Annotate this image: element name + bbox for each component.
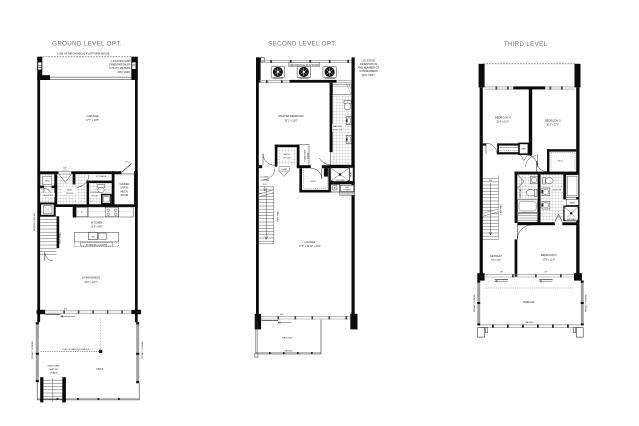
svg-text:MUD: MUD [67, 190, 72, 192]
svg-text:HALF WALL: HALF WALL [499, 203, 502, 215]
svg-text:MAY VARY: MAY VARY [118, 70, 131, 74]
svg-text:ORIENTATION OF: ORIENTATION OF [109, 63, 131, 67]
svg-text:ENSUITE: ENSUITE [552, 189, 561, 191]
svg-text:ORIENTATION: ORIENTATION [360, 62, 377, 66]
svg-text:PRIVACY SCREEN: PRIVACY SCREEN [473, 294, 476, 312]
svg-text:SLOPED CEILING: SLOPED CEILING [34, 213, 36, 232]
svg-text:PRIVACY SCREEN: PRIVACY SCREEN [584, 294, 587, 312]
svg-text:RETREAT: RETREAT [490, 254, 502, 258]
svg-text:AND NUMBER OF: AND NUMBER OF [358, 66, 380, 70]
svg-text:RAILING: RAILING [284, 350, 292, 353]
svg-text:W/D: W/D [45, 181, 50, 183]
svg-text:10'2" x 11'6": 10'2" x 11'6" [546, 124, 559, 127]
svg-text:BEDROOM 2: BEDROOM 2 [541, 253, 557, 257]
svg-text:CEILING: CEILING [260, 180, 269, 182]
svg-text:MASTER BEDROOM: MASTER BEDROOM [279, 114, 304, 118]
svg-text:UTILITY METERS: UTILITY METERS [109, 66, 130, 70]
svg-text:CONDENSERS: CONDENSERS [359, 69, 378, 73]
svg-text:PAN.: PAN. [521, 148, 526, 151]
svg-text:MASTER: MASTER [333, 125, 343, 128]
svg-text:SECOND LEVEL OPT.: SECOND LEVEL OPT. [268, 41, 337, 48]
svg-text:TERRACE: TERRACE [523, 301, 535, 304]
svg-text:MAY VARY: MAY VARY [362, 73, 375, 77]
svg-text:DECK: DECK [97, 368, 104, 371]
svg-text:13'4" x 8'5": 13'4" x 8'5" [91, 226, 103, 229]
svg-text:SUNKEN: SUNKEN [119, 183, 129, 186]
svg-text:LOCATION,: LOCATION, [362, 58, 376, 62]
svg-text:STORAGE: STORAGE [96, 175, 107, 178]
svg-text:17'8" x 11'6": 17'8" x 11'6" [542, 258, 555, 261]
svg-text:KITCHEN: KITCHEN [91, 221, 103, 225]
svg-text:GRADE: GRADE [50, 371, 58, 374]
svg-text:BALCONY: BALCONY [282, 336, 293, 339]
svg-text:SHOWER: SHOWER [567, 219, 577, 221]
svg-text:LINE OF BALCONY ABOVE: LINE OF BALCONY ABOVE [62, 348, 90, 351]
svg-text:s: s [102, 236, 103, 238]
svg-text:CURB: CURB [281, 169, 287, 171]
svg-text:LAUNDRY: LAUNDRY [43, 194, 54, 197]
svg-text:SLOPED: SLOPED [260, 177, 269, 179]
svg-text:POWDER: POWDER [90, 192, 100, 194]
svg-text:STEPS MAY: STEPS MAY [47, 364, 60, 367]
svg-text:ROOM: ROOM [121, 194, 128, 197]
svg-text:SEAT: SEAT [570, 202, 576, 205]
svg-text:PRIVACY SCREEN: PRIVACY SCREEN [141, 341, 144, 359]
svg-text:HALF WALL: HALF WALL [59, 231, 62, 244]
svg-text:17'7" x 20'5": 17'7" x 20'5" [86, 119, 99, 122]
svg-text:W.I.C.: W.I.C. [311, 181, 317, 183]
svg-text:17'2" x 26'10" + 20'1": 17'2" x 26'10" + 20'1" [299, 245, 322, 248]
svg-text:PRIVACY SCREEN: PRIVACY SCREEN [31, 341, 34, 359]
svg-text:FURNITURE: FURNITURE [305, 149, 307, 161]
svg-text:EXTENDED COUNTER: EXTENDED COUNTER [86, 244, 108, 246]
svg-text:MECH.: MECH. [120, 190, 128, 193]
svg-text:SEAT: SEAT [350, 171, 353, 177]
svg-text:DN: DN [489, 180, 493, 182]
svg-text:LOCATION AND: LOCATION AND [111, 59, 130, 63]
svg-text:W.I.C.: W.I.C. [558, 160, 564, 162]
svg-text:MECH.: MECH. [283, 154, 290, 156]
svg-text:TOWER: TOWER [343, 190, 351, 192]
svg-text:HALF WALL: HALF WALL [276, 210, 279, 222]
svg-text:THIRD LEVEL: THIRD LEVEL [504, 41, 548, 48]
svg-text:VARY AT: VARY AT [49, 368, 58, 371]
svg-text:12'4" x 11'6": 12'4" x 11'6" [496, 121, 509, 124]
svg-text:BEDROOM 4: BEDROOM 4 [495, 115, 511, 119]
svg-text:BEDROOM 3: BEDROOM 3 [545, 118, 561, 122]
svg-text:LIVING/DINING: LIVING/DINING [82, 276, 100, 280]
svg-text:UNFIN.: UNFIN. [120, 187, 128, 190]
svg-text:RAILING: RAILING [525, 321, 533, 324]
svg-text:ROOM: ROOM [66, 193, 73, 195]
svg-text:ROOM: ROOM [91, 196, 98, 198]
svg-text:NICHE: NICHE [307, 152, 309, 159]
svg-text:LINE OF MECHANICAL PLATFORM AB: LINE OF MECHANICAL PLATFORM ABOVE [58, 52, 110, 56]
svg-text:UP: UP [63, 168, 67, 170]
svg-text:LOUNGE: LOUNGE [305, 240, 316, 244]
svg-text:15'1" x 13'0": 15'1" x 13'0" [284, 119, 297, 122]
svg-text:21'0" x 14'7": 21'0" x 14'7" [84, 281, 97, 284]
svg-text:GARAGE: GARAGE [87, 114, 99, 118]
svg-text:7'4" x 9'2": 7'4" x 9'2" [491, 259, 502, 262]
svg-text:ENSUITE: ENSUITE [333, 130, 343, 132]
svg-text:MAIN BATH: MAIN BATH [519, 187, 522, 198]
svg-text:DN: DN [263, 184, 267, 186]
svg-text:GROUND LEVEL OPT.: GROUND LEVEL OPT. [52, 41, 122, 48]
svg-text:ROOM: ROOM [284, 157, 291, 159]
